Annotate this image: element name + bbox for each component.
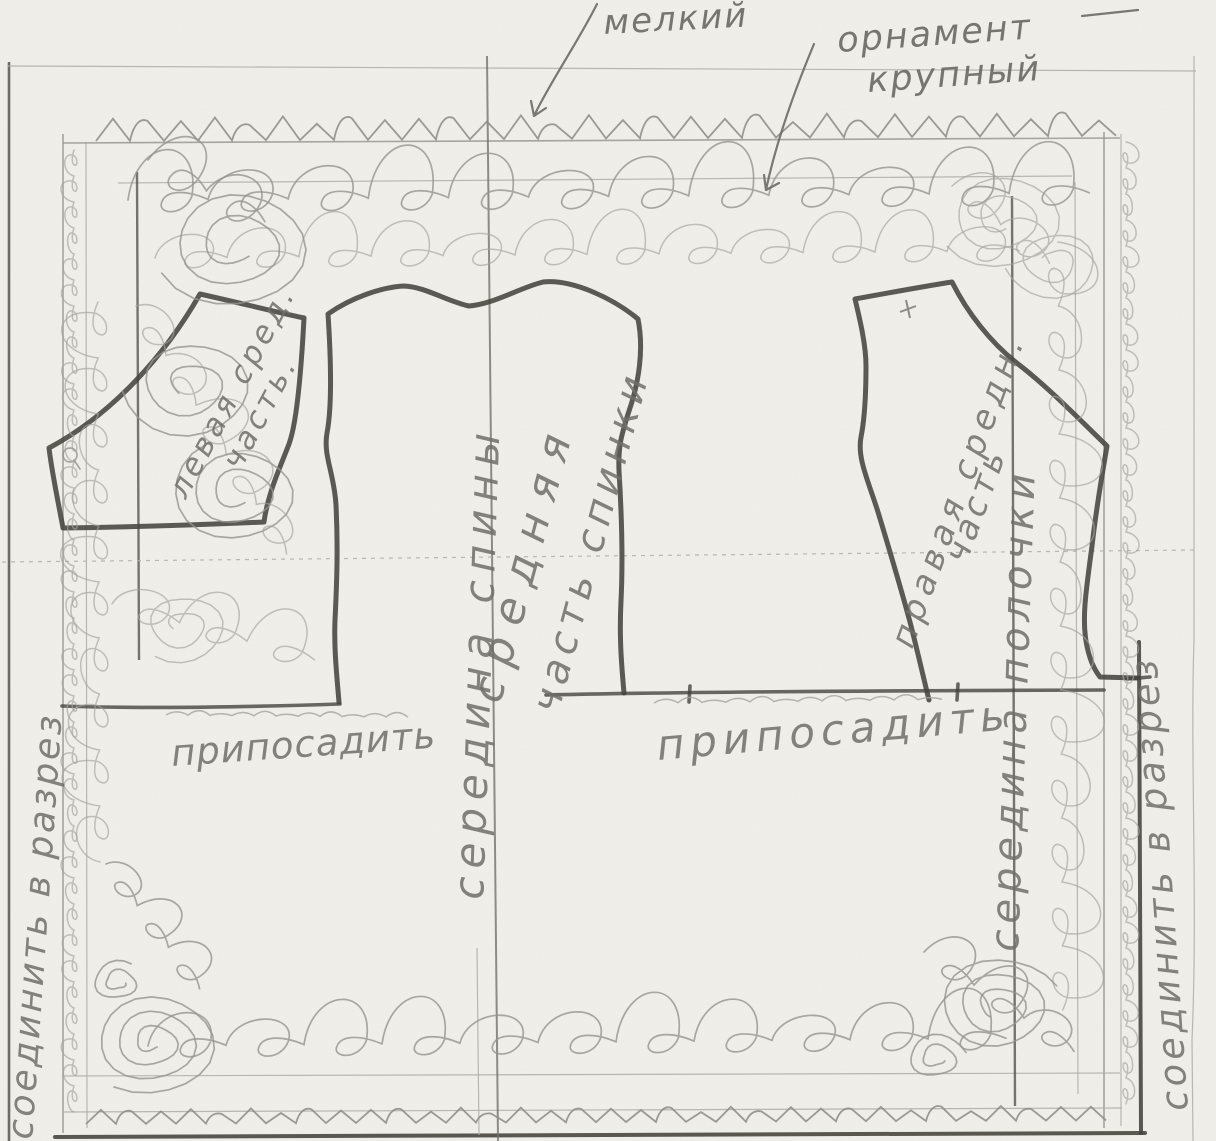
scanned-sewing-pattern-sheet: мелкий орнамент крупный левая сред. част… <box>0 0 1216 1141</box>
hem-tick-mark-1 <box>689 686 690 702</box>
label-ornament-small: мелкий <box>602 0 749 43</box>
pattern-drawing: мелкий орнамент крупный левая сред. част… <box>0 0 1216 1141</box>
